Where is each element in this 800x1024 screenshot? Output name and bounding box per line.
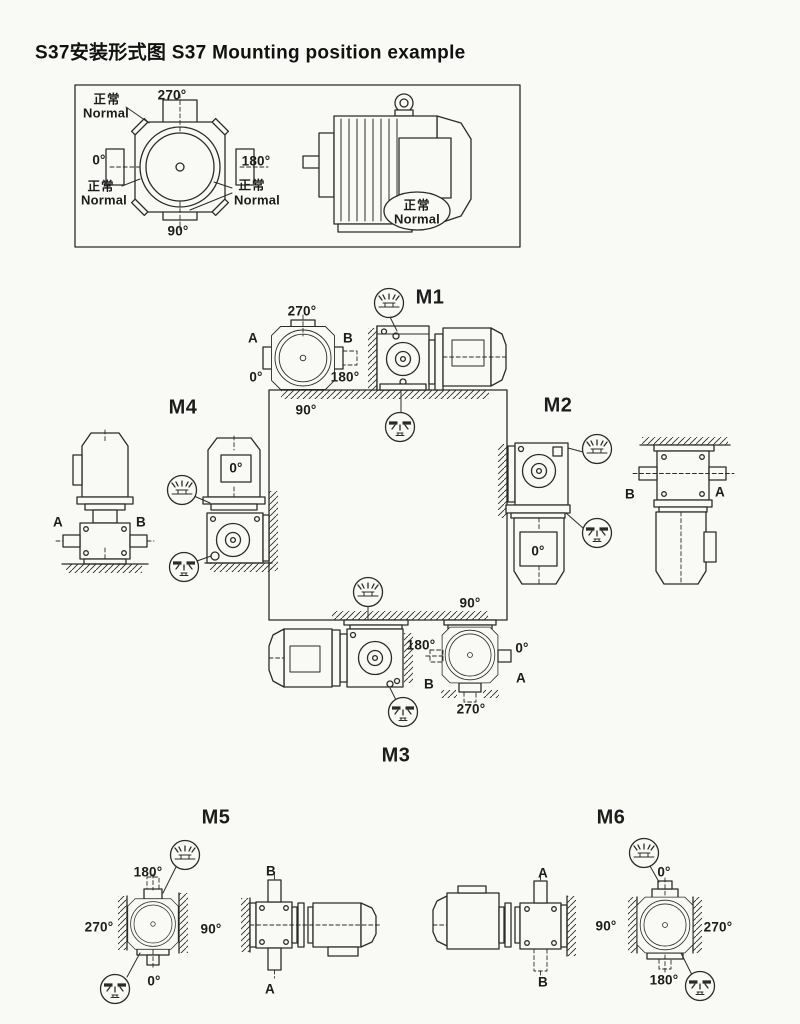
m5-shaft-a-label: A bbox=[265, 982, 275, 997]
m4-shaft-b-label: B bbox=[136, 515, 146, 530]
m1-position-label: M1 bbox=[416, 287, 445, 310]
m6-vent-icon bbox=[630, 839, 659, 868]
m6-angle-180: 180° bbox=[650, 973, 679, 988]
m6-position-label: M6 bbox=[597, 807, 626, 830]
m3-angle-0: 0° bbox=[515, 641, 528, 656]
m4-position-label: M4 bbox=[169, 397, 198, 420]
m3-vent-icon bbox=[354, 578, 383, 607]
m4-vent-icon bbox=[168, 476, 197, 505]
m2-position-label: M2 bbox=[544, 395, 573, 418]
legend-angle-270: 270° bbox=[158, 88, 187, 103]
m4-shaft-a-label: A bbox=[53, 515, 63, 530]
m3-angle-90: 90° bbox=[459, 596, 480, 611]
m4-side-view bbox=[56, 430, 154, 573]
m3-shaft-a-label: A bbox=[516, 671, 526, 686]
m6-angle-0: 0° bbox=[657, 865, 670, 880]
m2-wall-mounted-view bbox=[506, 435, 612, 585]
m3-front-view bbox=[424, 620, 511, 702]
legend-motor-side-view bbox=[303, 94, 471, 232]
legend-normal-top-en: Normal bbox=[83, 106, 129, 121]
legend-motor-normal-en: Normal bbox=[394, 212, 440, 227]
m4-drain-icon bbox=[170, 553, 199, 582]
m5-angle-90: 90° bbox=[200, 922, 221, 937]
m2-shaft-b-label: B bbox=[625, 487, 635, 502]
m5-angle-180: 180° bbox=[134, 865, 163, 880]
m2-cluster bbox=[506, 435, 734, 585]
m6-angle-270: 270° bbox=[704, 920, 733, 935]
m5-angle-0: 0° bbox=[147, 974, 160, 989]
m5-angle-270: 270° bbox=[85, 920, 114, 935]
legend-normal-right-cn: 正常 bbox=[238, 175, 265, 194]
m5-vent-icon bbox=[171, 841, 200, 870]
m3-drain-icon bbox=[389, 698, 418, 727]
m2-vent-icon bbox=[583, 435, 612, 464]
m3-angle-180: 180° bbox=[407, 638, 436, 653]
mounting-diagram-art bbox=[0, 0, 800, 1024]
m1-shaft-a-label: A bbox=[248, 331, 258, 346]
legend-normal-right-en: Normal bbox=[234, 193, 280, 208]
m2-motor-angle-0: 0° bbox=[531, 544, 544, 559]
m4-cluster bbox=[56, 430, 272, 582]
m6-shaft-b-label: B bbox=[538, 975, 548, 990]
m1-shaft-b-label: B bbox=[343, 331, 353, 346]
m2-shaft-a-label: A bbox=[715, 485, 725, 500]
m1-angle-180: 180° bbox=[331, 370, 360, 385]
m1-angle-0: 0° bbox=[249, 370, 262, 385]
m3-position-label: M3 bbox=[382, 745, 411, 768]
legend-box bbox=[75, 85, 520, 247]
m3-angle-270: 270° bbox=[457, 702, 486, 717]
m2-drain-icon bbox=[583, 519, 612, 548]
m5-position-label: M5 bbox=[202, 807, 231, 830]
page-title: S37安装形式图 S37 Mounting position example bbox=[35, 38, 466, 65]
document-page: S37安装形式图 S37 Mounting position example 2… bbox=[0, 0, 800, 1024]
m5-drain-icon bbox=[101, 975, 130, 1004]
m1-angle-90: 90° bbox=[295, 403, 316, 418]
m4-wall-mounted-view bbox=[168, 436, 273, 582]
m1-oil-drain-icon bbox=[386, 413, 415, 442]
m5-side-view bbox=[241, 875, 380, 978]
central-square bbox=[269, 390, 507, 620]
legend-angle-180: 180° bbox=[242, 154, 271, 169]
m1-vent-icon bbox=[375, 289, 404, 318]
legend-normal-bottomleft-en: Normal bbox=[81, 193, 127, 208]
m6-drain-icon bbox=[686, 972, 715, 1001]
m3-side-view bbox=[269, 620, 418, 727]
legend-angle-90: 90° bbox=[167, 224, 188, 239]
m6-side-view bbox=[433, 876, 576, 977]
m3-shaft-b-label: B bbox=[424, 677, 434, 692]
m6-shaft-a-label: A bbox=[538, 866, 548, 881]
m1-angle-270: 270° bbox=[288, 304, 317, 319]
m5-shaft-b-label: B bbox=[266, 864, 276, 879]
legend-angle-0: 0° bbox=[92, 153, 105, 168]
m4-motor-angle-0: 0° bbox=[229, 461, 242, 476]
m6-angle-90: 90° bbox=[595, 919, 616, 934]
m2-side-view bbox=[633, 437, 734, 584]
